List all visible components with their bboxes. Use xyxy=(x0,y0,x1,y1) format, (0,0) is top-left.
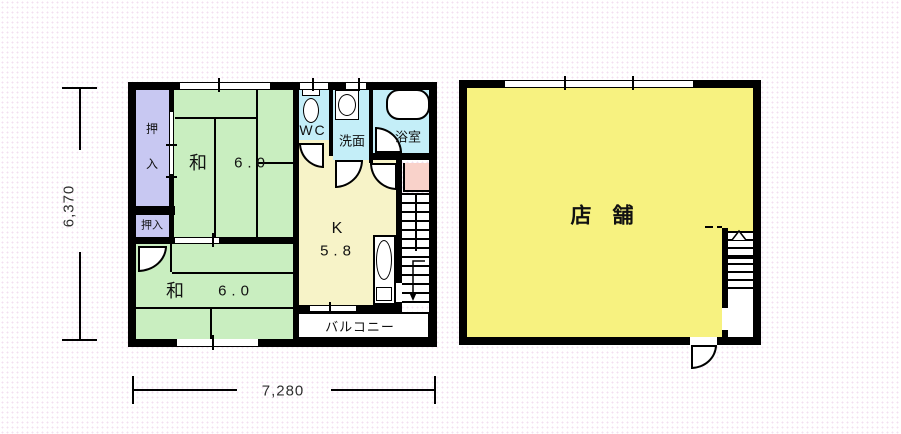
room-label-closet-lower: 押入 xyxy=(141,221,163,232)
room-label-closet-upper-char1: 押 xyxy=(146,123,158,135)
dimension-tick xyxy=(434,376,436,404)
window-mullion-tick xyxy=(358,78,360,91)
room-label-tatami-upper-size: 6.0 xyxy=(234,156,270,171)
dimension-tick xyxy=(132,376,134,404)
shop-floor-plan: 店 舗 xyxy=(459,80,761,345)
window xyxy=(346,83,366,89)
room-label-washroom: 洗面 xyxy=(339,135,365,148)
room-label-closet-upper-char2: 入 xyxy=(146,158,158,170)
unit-outer-wall xyxy=(128,82,437,347)
floorplan-stage: 押 入 押入 和 6.0 和 6.0 WC 洗面 浴室 K 5.8 バルコニー xyxy=(0,0,901,434)
dimension-line xyxy=(79,252,81,340)
room-label-tatami-lower-name: 和 xyxy=(166,282,184,300)
window-mullion-tick xyxy=(312,78,314,91)
room-label-kitchen-name: K xyxy=(332,221,343,237)
room-label-tatami-upper-name: 和 xyxy=(189,154,207,172)
room-label-kitchen-size: 5.8 xyxy=(320,244,356,259)
dimension-height-label: 6,370 xyxy=(62,185,77,228)
window-mullion-tick xyxy=(632,76,634,90)
window-mullion-tick xyxy=(212,335,214,350)
dimension-line xyxy=(133,389,237,391)
dimension-width-label: 7,280 xyxy=(262,384,305,399)
room-label-bathroom: 浴室 xyxy=(395,131,421,144)
dimension-tick xyxy=(62,87,97,89)
room-label-balcony: バルコニー xyxy=(325,321,395,334)
window xyxy=(505,81,693,87)
dimension-line xyxy=(79,88,81,150)
entrance-opening xyxy=(690,337,717,345)
dimension-tick xyxy=(62,339,97,341)
window-mullion-tick xyxy=(218,78,220,92)
dimension-line xyxy=(331,389,435,391)
unit-floor-plan: 押 入 押入 和 6.0 和 6.0 WC 洗面 浴室 K 5.8 バルコニー xyxy=(128,82,437,347)
window xyxy=(300,83,328,89)
room-label-tatami-lower-size: 6.0 xyxy=(218,284,254,299)
room-label-shop: 店 舗 xyxy=(571,206,634,227)
entrance-door-swing xyxy=(691,345,717,369)
window-mullion-tick xyxy=(564,76,566,90)
window xyxy=(180,83,270,89)
window xyxy=(177,339,258,346)
room-label-wc: WC xyxy=(299,123,326,137)
